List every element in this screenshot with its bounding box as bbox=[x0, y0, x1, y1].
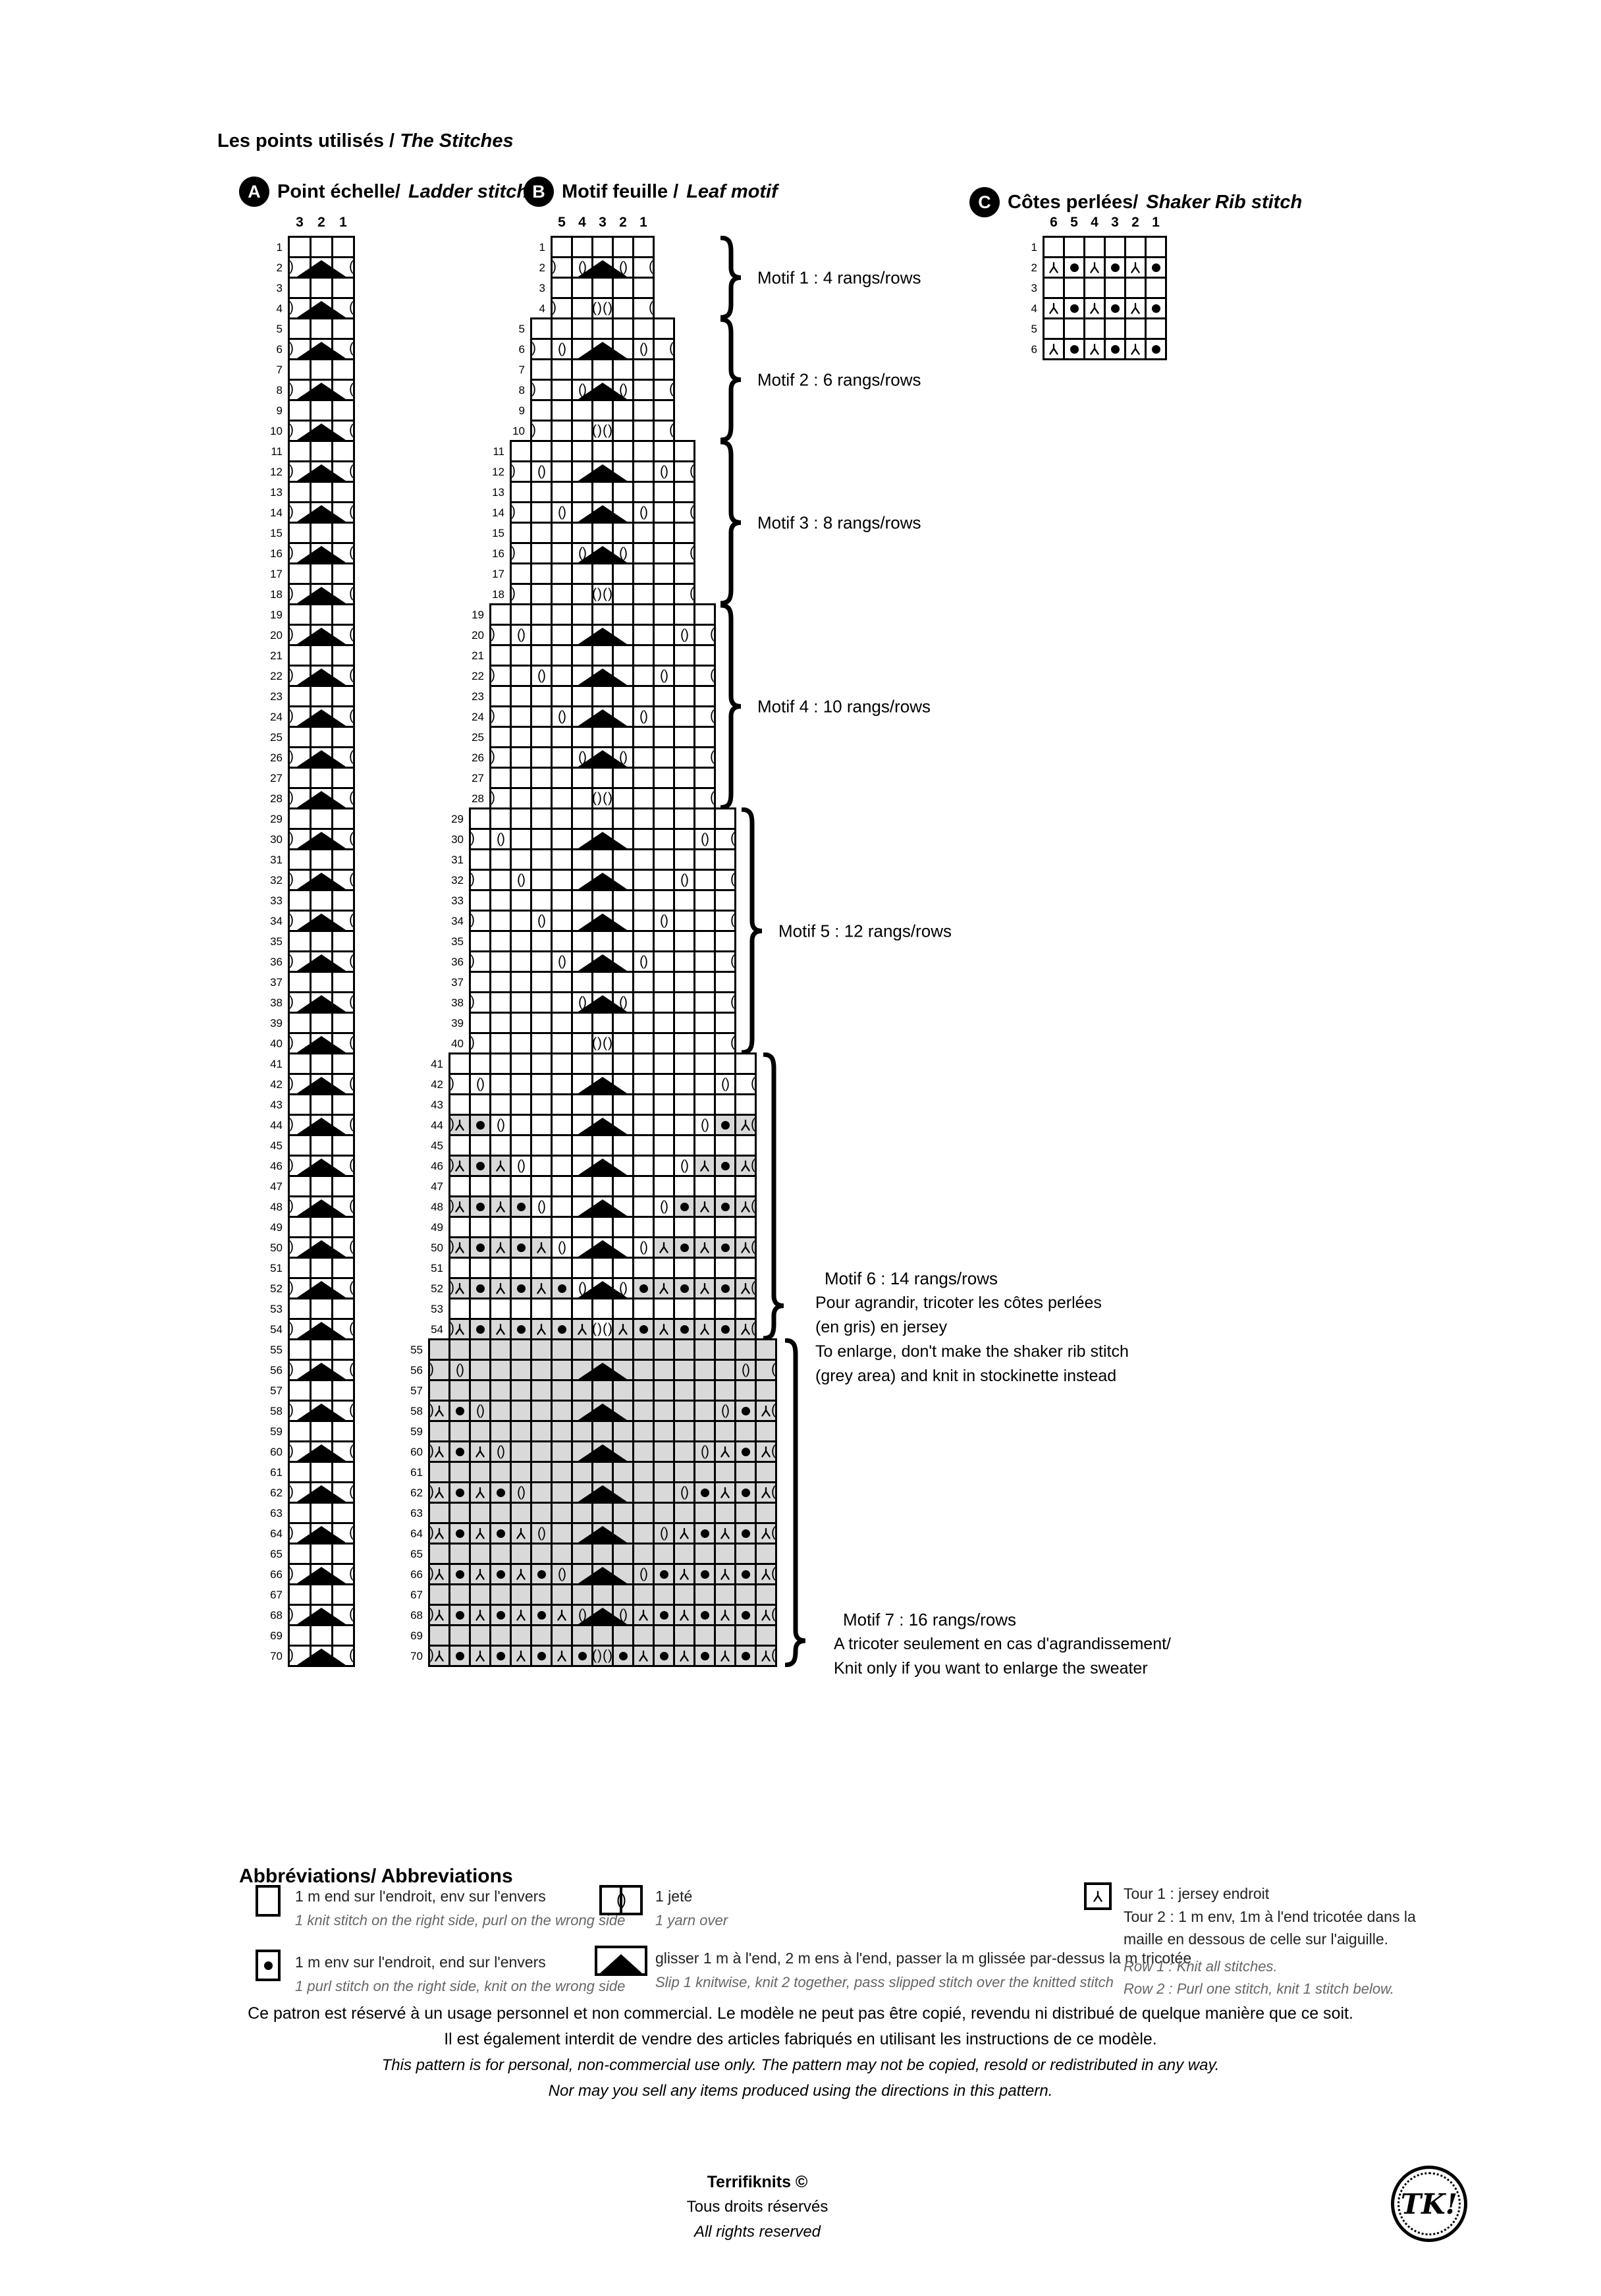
chart-cell bbox=[593, 973, 612, 991]
chart-cell bbox=[675, 605, 693, 624]
chart-cell bbox=[333, 1299, 353, 1318]
chart-cell bbox=[532, 483, 551, 501]
chart-cell bbox=[512, 912, 530, 930]
row-number: 5 bbox=[261, 319, 283, 338]
chart-cell bbox=[532, 1218, 551, 1236]
chart-cell bbox=[333, 728, 353, 746]
yarn-over-glyph: () bbox=[680, 1485, 688, 1500]
column-number: 1 bbox=[634, 215, 653, 231]
edge-yarn-over-half: ( bbox=[349, 1198, 354, 1214]
chart-cell bbox=[614, 1218, 632, 1236]
chart-cell bbox=[491, 1320, 510, 1338]
row-number: 29 bbox=[443, 809, 464, 828]
chart-cell bbox=[675, 1504, 693, 1522]
chart-cell bbox=[757, 1422, 775, 1440]
chart-cell bbox=[695, 1054, 714, 1073]
edge-yarn-over-half: ) bbox=[289, 626, 294, 642]
chart-cell bbox=[593, 850, 612, 869]
chart-cell: ) bbox=[491, 789, 510, 807]
decrease-triangle-glyph bbox=[297, 832, 346, 848]
chart-cell bbox=[573, 1626, 591, 1645]
chart-cell bbox=[593, 564, 612, 583]
row-number: 66 bbox=[402, 1565, 423, 1583]
chart-cell: ) bbox=[430, 1647, 448, 1665]
chart-cell bbox=[512, 809, 530, 828]
chart-cell bbox=[736, 1483, 755, 1502]
yarn-over-glyph: () bbox=[456, 1362, 464, 1378]
row-number: 10 bbox=[261, 422, 283, 440]
chart-cell bbox=[593, 1177, 612, 1195]
chart-cell bbox=[736, 1340, 755, 1359]
chart-cell bbox=[634, 850, 653, 869]
chart-cell bbox=[491, 850, 510, 869]
knit-below-icon bbox=[678, 1650, 690, 1662]
decrease-triangle-glyph bbox=[578, 1363, 627, 1379]
row-number: 59 bbox=[402, 1422, 423, 1440]
chart-cell bbox=[634, 564, 653, 583]
chart-cell bbox=[634, 1014, 653, 1032]
chart-cell bbox=[655, 973, 673, 991]
chart-cell: ( bbox=[695, 626, 714, 644]
chart-cell bbox=[312, 442, 331, 460]
chart-cell bbox=[491, 1279, 510, 1298]
chart-grid: )()()()()()()()()()()()()()()()()()( bbox=[469, 807, 736, 1054]
chart-cell bbox=[312, 769, 331, 787]
yarn-over-glyph: () bbox=[537, 668, 545, 684]
knit-below-icon bbox=[678, 1568, 690, 1581]
edge-yarn-over-half: ) bbox=[511, 504, 516, 520]
chart-cell bbox=[634, 483, 653, 501]
chart-cell bbox=[450, 1585, 469, 1604]
edge-yarn-over-half: ( bbox=[349, 1321, 354, 1336]
chart-cell bbox=[1126, 258, 1145, 277]
chart-cell bbox=[450, 1442, 469, 1461]
chart-cell bbox=[471, 891, 489, 910]
chart-cell: ( bbox=[757, 1483, 775, 1502]
chart-cell: () bbox=[675, 871, 693, 889]
chart-cell: ) bbox=[553, 299, 571, 317]
row-number: 35 bbox=[261, 932, 283, 950]
chart-cell bbox=[695, 1402, 714, 1420]
chart-cell: ( bbox=[695, 789, 714, 807]
chart-cell bbox=[614, 1381, 632, 1400]
chart-cell bbox=[450, 1381, 469, 1400]
chart-cell bbox=[1106, 299, 1124, 317]
chart-cell bbox=[634, 442, 653, 460]
chart-cell bbox=[655, 605, 673, 624]
row-number: 15 bbox=[483, 524, 504, 542]
chart-cell bbox=[491, 1238, 510, 1257]
row-number: 64 bbox=[261, 1524, 283, 1543]
chart-cell: () bbox=[716, 1075, 734, 1093]
chart-cell bbox=[655, 1095, 673, 1114]
edge-yarn-over-half: ) bbox=[289, 1321, 294, 1336]
chart-cell bbox=[1147, 238, 1165, 256]
knit-below-icon bbox=[719, 1568, 731, 1581]
chart-cell bbox=[593, 524, 612, 542]
yarn-over-glyph: () bbox=[660, 1199, 668, 1215]
row-number: 26 bbox=[261, 748, 283, 767]
chart-cell bbox=[573, 401, 591, 420]
chart-cell bbox=[573, 319, 591, 338]
edge-yarn-over-half: ) bbox=[289, 1443, 294, 1459]
chart-cell bbox=[573, 687, 591, 705]
chart-cell bbox=[290, 1381, 310, 1400]
chart-cell bbox=[655, 1218, 673, 1236]
chart-cell bbox=[573, 483, 591, 501]
chart-cell bbox=[512, 1504, 530, 1522]
knit-below-icon bbox=[719, 1650, 731, 1662]
decrease-triangle-glyph bbox=[297, 750, 346, 767]
chart-cell bbox=[553, 564, 571, 583]
chart-cell bbox=[736, 1299, 755, 1318]
chart-cell bbox=[532, 1279, 551, 1298]
edge-yarn-over-half: ( bbox=[349, 667, 354, 683]
chart-cell bbox=[655, 1157, 673, 1175]
chart-cell bbox=[736, 1544, 755, 1563]
edge-yarn-over-half: ) bbox=[289, 953, 294, 969]
chart-cell bbox=[675, 809, 693, 828]
yarn-over-glyph: () bbox=[639, 505, 647, 520]
row-number: 27 bbox=[261, 769, 283, 787]
edge-yarn-over-half: ) bbox=[450, 1076, 454, 1091]
edge-yarn-over-half: ) bbox=[289, 871, 294, 887]
knit-below-icon bbox=[1129, 343, 1141, 356]
chart-cell bbox=[290, 360, 310, 379]
chart-cell bbox=[593, 1095, 612, 1114]
chart-cell bbox=[471, 1238, 489, 1257]
chart-grid: )()()()()()()()()()()()( bbox=[510, 440, 695, 605]
edge-yarn-over-half: ) bbox=[289, 831, 294, 846]
chart-cell bbox=[532, 544, 551, 562]
chart-cell bbox=[512, 1259, 530, 1277]
chart-cell bbox=[716, 932, 734, 950]
chart-cell bbox=[491, 1606, 510, 1624]
knit-below-icon bbox=[474, 1487, 486, 1499]
chart-cell bbox=[1065, 319, 1083, 338]
knit-below-icon bbox=[474, 1527, 486, 1540]
chart-cell bbox=[532, 1095, 551, 1114]
row-number: 16 bbox=[261, 544, 283, 562]
chart-cell bbox=[593, 993, 612, 1012]
chart-cell bbox=[716, 1014, 734, 1032]
motif-brace bbox=[718, 603, 744, 809]
chart-cell bbox=[634, 605, 653, 624]
chart-cell bbox=[1085, 279, 1104, 297]
chart-cell bbox=[655, 1585, 673, 1604]
chart-cell bbox=[634, 973, 653, 991]
chart-cell bbox=[695, 1606, 714, 1624]
chart-cell bbox=[312, 789, 331, 807]
chart-cell bbox=[593, 1442, 612, 1461]
decrease-triangle-glyph bbox=[578, 1240, 627, 1257]
chart-cell bbox=[450, 1218, 469, 1236]
chart-cell: ) bbox=[512, 462, 530, 481]
edge-yarn-over-half: ( bbox=[649, 300, 653, 315]
chart-cell bbox=[532, 1585, 551, 1604]
chart-cell bbox=[675, 564, 693, 583]
chart-cell bbox=[614, 1647, 632, 1665]
chart-cell: () bbox=[634, 340, 653, 358]
yarn-over-glyph: () bbox=[701, 1117, 709, 1133]
edge-yarn-over-half: ( bbox=[349, 1361, 354, 1377]
chart-cell bbox=[634, 1157, 653, 1175]
chart-cell bbox=[573, 585, 591, 603]
chart-cell bbox=[634, 1299, 653, 1318]
knit-below-icon bbox=[474, 1568, 486, 1581]
chart-cell bbox=[312, 809, 331, 828]
chart-cell bbox=[512, 1463, 530, 1481]
chart-cell bbox=[471, 1095, 489, 1114]
chart-cell bbox=[614, 973, 632, 991]
chart-cell bbox=[312, 871, 331, 889]
purl-dot-icon bbox=[619, 1652, 628, 1660]
chart-cell bbox=[573, 605, 591, 624]
chart-cell bbox=[655, 830, 673, 848]
chart-cell bbox=[512, 1320, 530, 1338]
knit-below-legend-fr1: Tour 1 : jersey endroit bbox=[1124, 1885, 1269, 1903]
chart-cell bbox=[450, 1422, 469, 1440]
chart-cell bbox=[573, 1034, 591, 1052]
chart-cell: () bbox=[512, 1483, 530, 1502]
decrease-triangle-glyph bbox=[297, 301, 346, 317]
chart-cell bbox=[614, 1177, 632, 1195]
decrease-triangle-glyph bbox=[297, 1444, 346, 1461]
column-number: 1 bbox=[1147, 215, 1165, 231]
chart-cell bbox=[532, 1483, 551, 1502]
chart-cell bbox=[512, 769, 530, 787]
chart-cell bbox=[512, 1014, 530, 1032]
chart-cell bbox=[655, 1340, 673, 1359]
chart-cell bbox=[471, 1381, 489, 1400]
chart-cell bbox=[290, 1422, 310, 1440]
chart-cell bbox=[655, 1279, 673, 1298]
chart-cell bbox=[716, 1095, 734, 1114]
chart-cell bbox=[675, 1463, 693, 1481]
motif-brace bbox=[718, 236, 744, 319]
double-yarn-over-glyph: ()() bbox=[592, 790, 613, 806]
chart-cell bbox=[655, 1565, 673, 1583]
chart-cell bbox=[655, 993, 673, 1012]
chart-cell bbox=[312, 1177, 331, 1195]
chart-cell bbox=[312, 258, 331, 277]
row-number: 16 bbox=[483, 544, 504, 562]
chart-cell: () bbox=[512, 871, 530, 889]
chart-cell bbox=[675, 1626, 693, 1645]
purl-dot-icon bbox=[721, 1121, 730, 1130]
chart-cell bbox=[430, 1463, 448, 1481]
chart-cell bbox=[491, 1524, 510, 1543]
row-number: 42 bbox=[261, 1075, 283, 1093]
yarn-over-glyph: () bbox=[619, 1607, 627, 1623]
copyright-line: Nor may you sell any items produced usin… bbox=[0, 2078, 1601, 2104]
row-number: 5 bbox=[504, 319, 525, 338]
edge-yarn-over-half: ( bbox=[751, 1116, 755, 1132]
chart-cell bbox=[512, 667, 530, 685]
edge-yarn-over-half: ( bbox=[349, 790, 354, 806]
yarn-over-glyph: () bbox=[742, 1362, 749, 1378]
purl-dot-icon bbox=[264, 1961, 273, 1970]
row-number: 49 bbox=[422, 1218, 443, 1236]
edge-yarn-over-half: ( bbox=[751, 1157, 755, 1173]
edge-yarn-over-half: ) bbox=[450, 1116, 454, 1132]
chart-cell bbox=[312, 891, 331, 910]
decrease-triangle-glyph bbox=[297, 1199, 346, 1216]
chart-cell: ) bbox=[553, 258, 571, 277]
edge-yarn-over-half: ( bbox=[710, 708, 715, 724]
chart-cell bbox=[491, 1422, 510, 1440]
edge-yarn-over-half: ( bbox=[669, 341, 674, 356]
chart-cell bbox=[471, 932, 489, 950]
chart-cell bbox=[573, 524, 591, 542]
row-number: 58 bbox=[402, 1402, 423, 1420]
chart-cell bbox=[553, 1585, 571, 1604]
chart-cell bbox=[573, 1259, 591, 1277]
chart-cell bbox=[716, 1279, 734, 1298]
chart-cell bbox=[573, 442, 591, 460]
chart-cell bbox=[532, 605, 551, 624]
chart-cell bbox=[675, 524, 693, 542]
chart-cell bbox=[655, 728, 673, 746]
chart-cell bbox=[593, 1054, 612, 1073]
yarn-over-legend-fr: 1 jeté bbox=[655, 1888, 692, 1905]
chart-cell bbox=[695, 871, 714, 889]
row-number: 69 bbox=[261, 1626, 283, 1645]
chart-cell bbox=[716, 1157, 734, 1175]
chart-cell bbox=[593, 891, 612, 910]
purl-dot-icon bbox=[456, 1448, 464, 1456]
chart-cell bbox=[573, 1014, 591, 1032]
chart-cell bbox=[312, 626, 331, 644]
chart-cell bbox=[1065, 279, 1083, 297]
chart-cell bbox=[655, 1626, 673, 1645]
page-title-fr: Les points utilisés / bbox=[217, 130, 394, 151]
chart-cell bbox=[312, 1197, 331, 1216]
decrease-triangle-glyph bbox=[578, 669, 627, 685]
chart-cell bbox=[634, 1361, 653, 1379]
purl-dot-icon bbox=[742, 1489, 750, 1497]
edge-yarn-over-half: ) bbox=[429, 1647, 434, 1663]
chart-cell bbox=[553, 544, 571, 562]
edge-yarn-over-half: ) bbox=[429, 1484, 434, 1500]
chart-cell bbox=[312, 1238, 331, 1257]
row-number: 53 bbox=[261, 1299, 283, 1318]
chart-cell bbox=[695, 850, 714, 869]
knit-below-icon bbox=[454, 1119, 466, 1132]
chart-cell bbox=[290, 850, 310, 869]
yarn-over-glyph: () bbox=[660, 464, 668, 479]
chart-cell bbox=[716, 1463, 734, 1481]
chart-cell: ) bbox=[471, 952, 489, 971]
copyright-line: This pattern is for personal, non-commer… bbox=[0, 2052, 1601, 2078]
chart-cell bbox=[553, 1034, 571, 1052]
chart-cell bbox=[695, 1034, 714, 1052]
chart-cell bbox=[655, 850, 673, 869]
chart-cell: ()() bbox=[593, 1034, 612, 1052]
row-number: 51 bbox=[422, 1259, 443, 1277]
chart-cell bbox=[312, 1606, 331, 1624]
knit-below-icon bbox=[1089, 343, 1100, 356]
chart-cell bbox=[512, 1238, 530, 1257]
knit-below-icon bbox=[1084, 1882, 1112, 1910]
chart-cell bbox=[512, 1402, 530, 1420]
chart-cell bbox=[614, 789, 632, 807]
purl-dot-icon bbox=[558, 1284, 566, 1293]
decrease-triangle-glyph bbox=[578, 709, 627, 726]
motif-label: Motif 5 : 12 rangs/rows bbox=[778, 921, 952, 941]
chart-cell bbox=[553, 1544, 571, 1563]
chart-cell bbox=[532, 1565, 551, 1583]
chart-cell bbox=[695, 1361, 714, 1379]
chart-cell bbox=[655, 748, 673, 767]
decrease-triangle-glyph bbox=[297, 1608, 346, 1624]
chart-cell bbox=[312, 564, 331, 583]
chart-cell bbox=[634, 238, 653, 256]
edge-yarn-over-half: ( bbox=[349, 626, 354, 642]
knit-below-legend-en2: Row 2 : Purl one stitch, knit 1 stitch b… bbox=[1124, 1981, 1394, 1998]
edge-yarn-over-half: ) bbox=[289, 994, 294, 1010]
chart-cell bbox=[655, 319, 673, 338]
chart-cell bbox=[716, 1299, 734, 1318]
edge-yarn-over-half: ( bbox=[730, 994, 735, 1010]
purl-stitch-icon bbox=[256, 1950, 281, 1981]
decrease-triangle-glyph bbox=[297, 1036, 346, 1052]
chart-cell bbox=[512, 891, 530, 910]
chart-cell bbox=[333, 1095, 353, 1114]
edge-yarn-over-half: ( bbox=[349, 1647, 354, 1663]
chart-cell bbox=[512, 605, 530, 624]
chart-cell bbox=[471, 1483, 489, 1502]
chart-cell bbox=[655, 1647, 673, 1665]
chart-cell bbox=[716, 1197, 734, 1216]
chart-cell bbox=[614, 687, 632, 705]
chart-cell: ( bbox=[716, 952, 734, 971]
chart-cell bbox=[675, 1524, 693, 1543]
chart-cell bbox=[573, 1585, 591, 1604]
chart-cell: () bbox=[491, 830, 510, 848]
chart-cell bbox=[675, 1340, 693, 1359]
chart-cell bbox=[655, 1177, 673, 1195]
chart-cell bbox=[716, 1361, 734, 1379]
decrease-triangle-glyph bbox=[578, 342, 627, 358]
purl-dot-icon bbox=[660, 1570, 668, 1579]
chart-cell bbox=[634, 1626, 653, 1645]
chart-cell bbox=[634, 1279, 653, 1298]
chart-cell: () bbox=[553, 1238, 571, 1257]
yarn-over-glyph: () bbox=[619, 750, 627, 765]
knit-below-icon bbox=[719, 1446, 731, 1458]
knit-below-icon bbox=[515, 1609, 527, 1622]
chart-cell bbox=[312, 687, 331, 705]
motif-note: Knit only if you want to enlarge the swe… bbox=[834, 1656, 1171, 1681]
chart-cell bbox=[593, 1238, 612, 1257]
chart-cell bbox=[312, 973, 331, 991]
decrease-triangle-glyph bbox=[297, 1363, 346, 1379]
chart-cell bbox=[491, 1075, 510, 1093]
chart-cell bbox=[1065, 340, 1083, 358]
rights-fr: Tous droits réservés bbox=[428, 2195, 1087, 2220]
chart-cell bbox=[614, 422, 632, 440]
chart-cell bbox=[695, 1320, 714, 1338]
chart-cell: ) bbox=[491, 626, 510, 644]
edge-yarn-over-half: ( bbox=[349, 912, 354, 928]
chart-cell bbox=[716, 891, 734, 910]
yarn-over-glyph: () bbox=[517, 1485, 525, 1500]
chart-cell bbox=[553, 1197, 571, 1216]
chart-cell bbox=[593, 687, 612, 705]
column-number: 3 bbox=[1106, 215, 1124, 231]
yarn-over-glyph: () bbox=[497, 1444, 504, 1460]
